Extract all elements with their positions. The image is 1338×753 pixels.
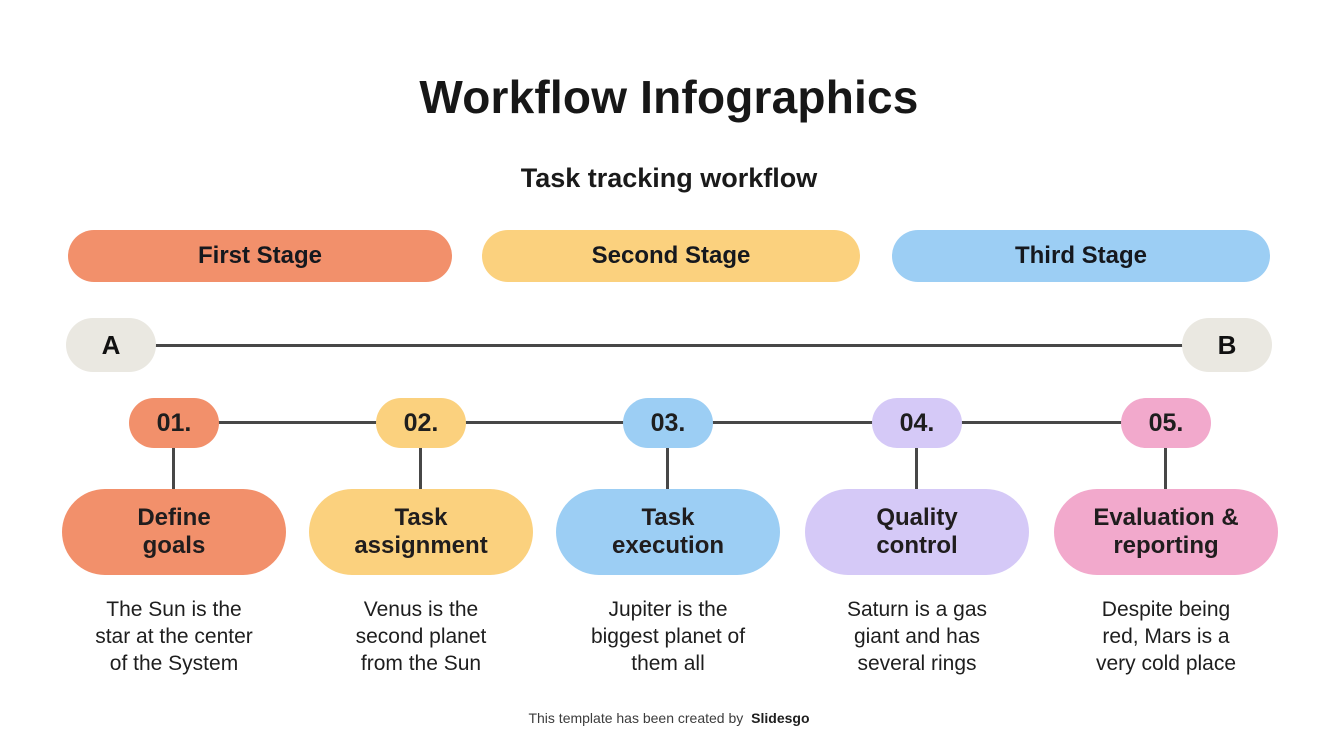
footer-credit: This template has been created by Slides… xyxy=(0,710,1338,726)
step2-label-pill: Task assignment xyxy=(309,489,533,575)
step5-number-pill: 05. xyxy=(1121,398,1211,448)
timeline-start-marker: A xyxy=(66,318,156,372)
step4-connector xyxy=(915,448,918,489)
step3-description: Jupiter is the biggest planet of them al… xyxy=(538,597,798,678)
workflow-infographic-slide: Workflow Infographics Task tracking work… xyxy=(0,0,1338,753)
timeline-line xyxy=(110,344,1228,347)
stage-label-third: Third Stage xyxy=(1015,242,1147,270)
step3-label-pill: Task execution xyxy=(556,489,780,575)
step4-description: Saturn is a gas giant and has several ri… xyxy=(787,597,1047,678)
step5-connector xyxy=(1164,448,1167,489)
timeline-end-marker: B xyxy=(1182,318,1272,372)
footer-brand-name: Slidesgo xyxy=(751,710,809,726)
step4-number-pill: 04. xyxy=(872,398,962,448)
step3-number-pill: 03. xyxy=(623,398,713,448)
stage-pill-second: Second Stage xyxy=(482,230,860,282)
step1-connector xyxy=(172,448,175,489)
step2-connector xyxy=(419,448,422,489)
step1-number-pill: 01. xyxy=(129,398,219,448)
step3-connector xyxy=(666,448,669,489)
footer-credit-text: This template has been created by xyxy=(528,710,743,726)
step2-description: Venus is the second planet from the Sun xyxy=(291,597,551,678)
step1-description: The Sun is the star at the center of the… xyxy=(44,597,304,678)
step4-label-pill: Quality control xyxy=(805,489,1029,575)
stage-label-second: Second Stage xyxy=(592,242,751,270)
step5-description: Despite being red, Mars is a very cold p… xyxy=(1036,597,1296,678)
step1-label-pill: Define goals xyxy=(62,489,286,575)
stage-pill-third: Third Stage xyxy=(892,230,1270,282)
slide-subtitle: Task tracking workflow xyxy=(0,163,1338,194)
step5-label-pill: Evaluation & reporting xyxy=(1054,489,1278,575)
slide-title: Workflow Infographics xyxy=(0,70,1338,124)
step2-number-pill: 02. xyxy=(376,398,466,448)
stage-pill-first: First Stage xyxy=(68,230,452,282)
stage-label-first: First Stage xyxy=(198,242,322,270)
